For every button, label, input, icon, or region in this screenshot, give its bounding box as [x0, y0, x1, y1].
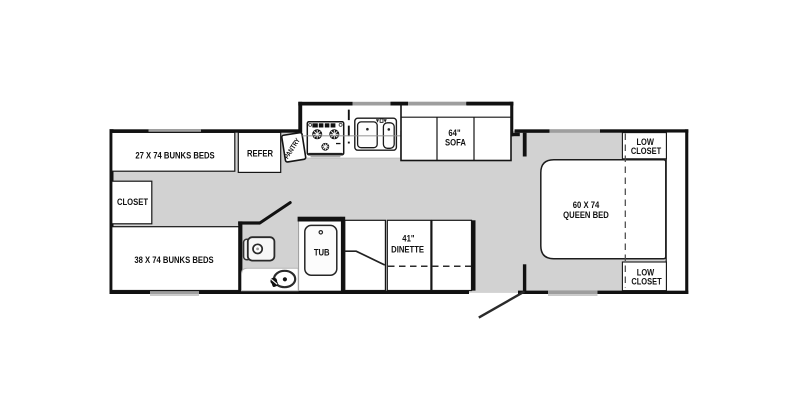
svg-text:TUB: TUB	[314, 247, 330, 258]
svg-text:41": 41"	[402, 233, 414, 244]
svg-text:CLOSET: CLOSET	[117, 196, 149, 207]
svg-text:REFER: REFER	[247, 148, 274, 159]
svg-text:CLOSET: CLOSET	[631, 277, 661, 287]
svg-text:27 X 74 BUNKS BEDS: 27 X 74 BUNKS BEDS	[135, 150, 215, 161]
svg-text:SOFA: SOFA	[445, 136, 467, 147]
svg-text:38 X 74 BUNKS BEDS: 38 X 74 BUNKS BEDS	[134, 254, 214, 265]
svg-text:QUEEN BED: QUEEN BED	[563, 209, 609, 220]
svg-text:DINETTE: DINETTE	[391, 244, 424, 255]
svg-text:CLOSET: CLOSET	[631, 146, 661, 156]
